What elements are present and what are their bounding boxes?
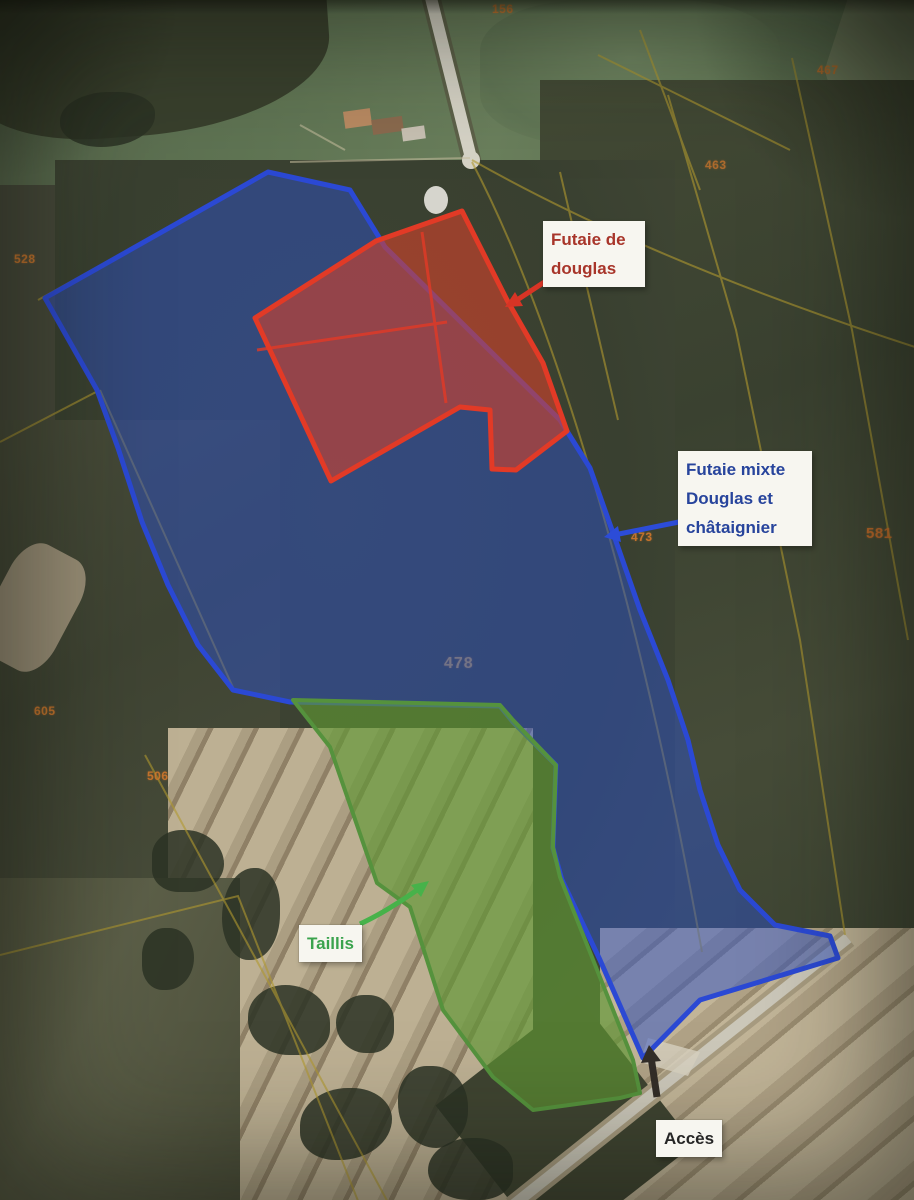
label-line: Douglas et bbox=[686, 484, 804, 513]
label-taillis: Taillis bbox=[299, 925, 362, 962]
futaie-mixte-arrow bbox=[604, 522, 679, 542]
label-futaie-mixte: Futaie mixte Douglas et châtaignier bbox=[678, 451, 812, 546]
label-acces: Accès bbox=[656, 1120, 722, 1157]
label-line: Accès bbox=[664, 1124, 714, 1153]
label-line: Taillis bbox=[307, 929, 354, 958]
aerial-map-photo: 156 467 463 528 605 506 473 581 478 bbox=[0, 0, 914, 1200]
label-line: châtaignier bbox=[686, 513, 804, 542]
label-line: Futaie mixte bbox=[686, 455, 804, 484]
zone-overlays bbox=[0, 0, 914, 1200]
label-futaie-douglas: Futaie de douglas bbox=[543, 221, 645, 287]
label-line: Futaie de bbox=[551, 225, 637, 254]
label-line: douglas bbox=[551, 254, 637, 283]
